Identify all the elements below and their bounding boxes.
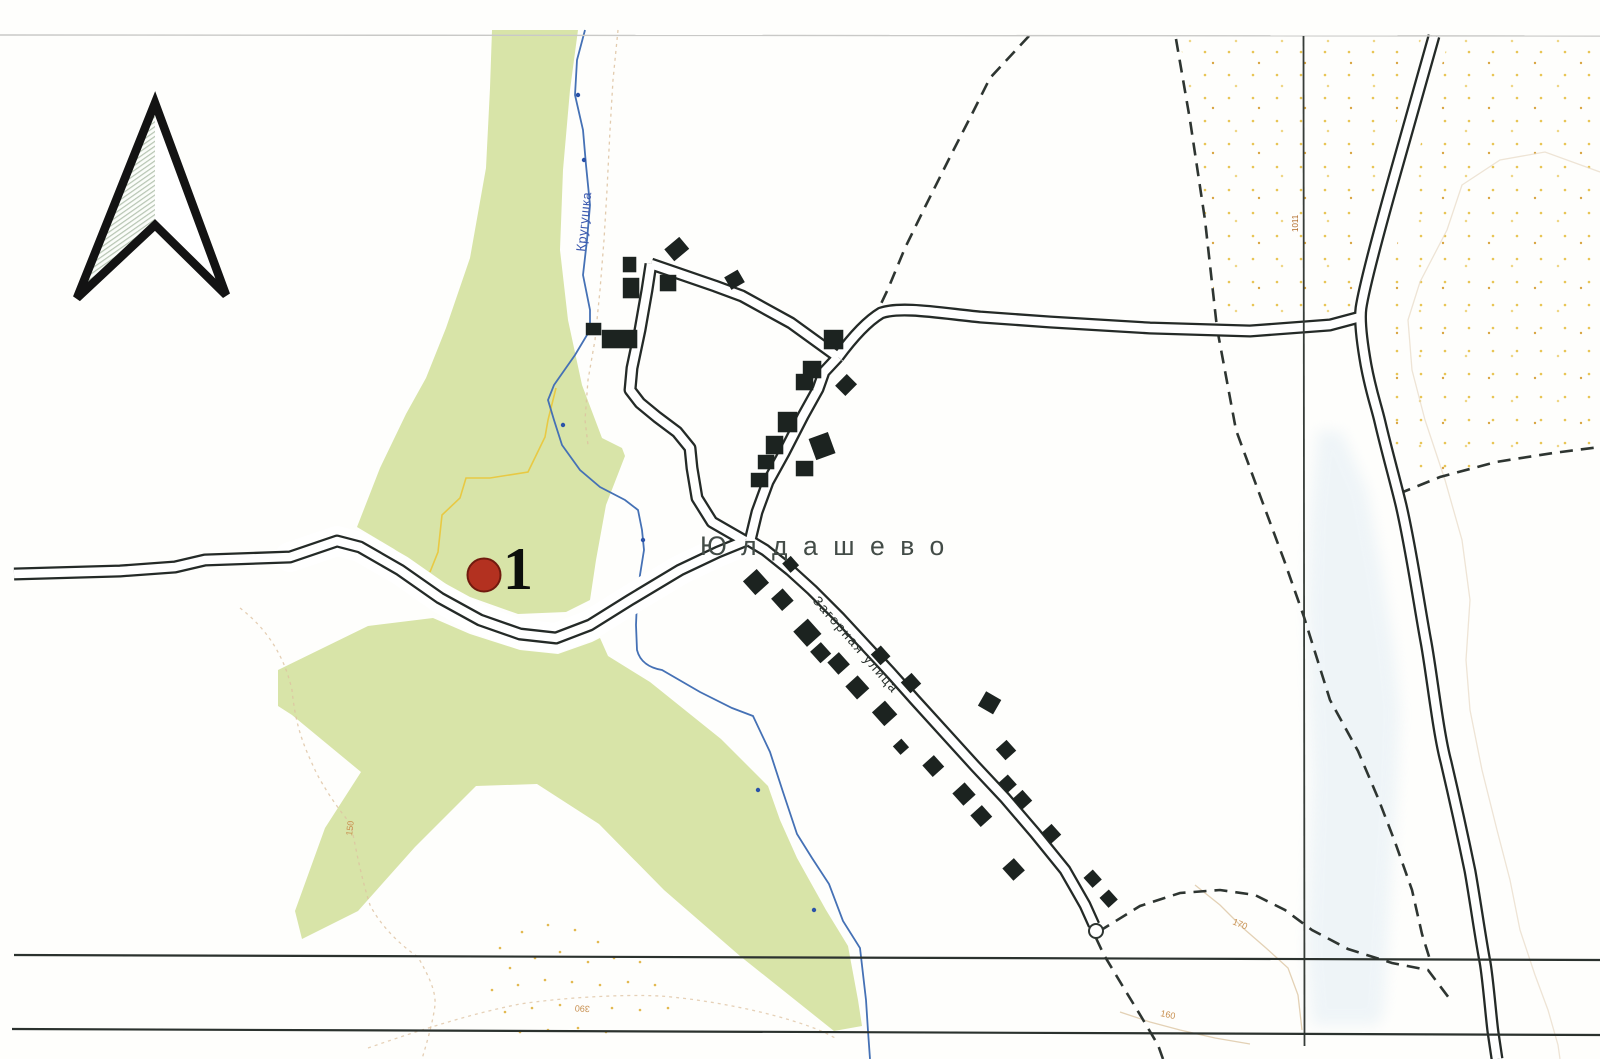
svg-text:1: 1 bbox=[503, 536, 533, 602]
svg-text:390: 390 bbox=[575, 1003, 591, 1014]
svg-text:1011: 1011 bbox=[1291, 214, 1300, 232]
svg-text:Юлдашево: Юлдашево bbox=[700, 531, 960, 561]
svg-text:150: 150 bbox=[344, 820, 356, 836]
